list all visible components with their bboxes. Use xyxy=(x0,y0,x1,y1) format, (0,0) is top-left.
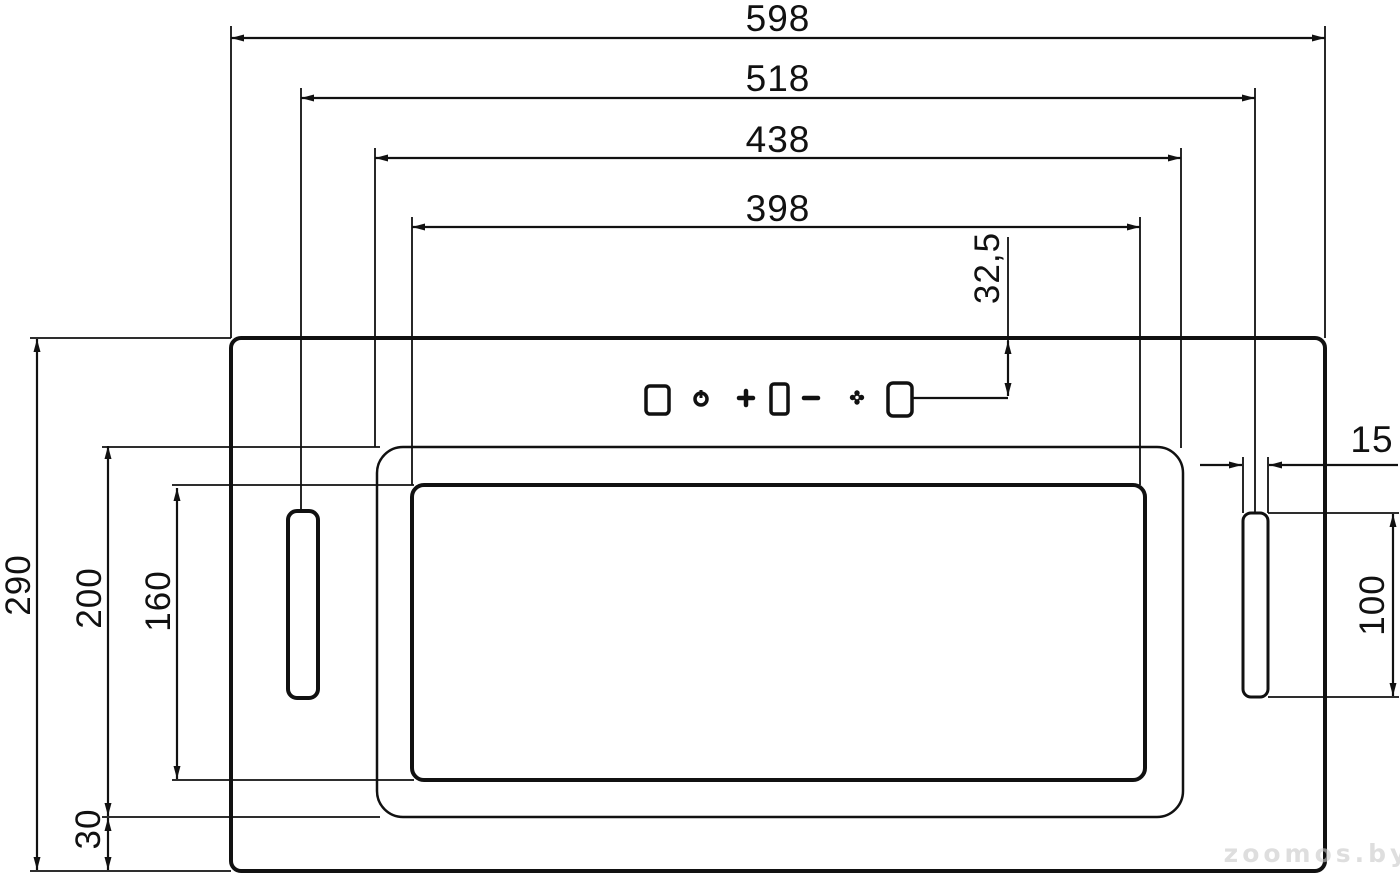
technical-drawing: 598 518 438 398 32,5 15 100 290 200 160 … xyxy=(0,0,1400,882)
drawing-canvas: 598 518 438 398 32,5 15 100 290 200 160 … xyxy=(0,0,1400,882)
dim-label-control-offset: 32,5 xyxy=(968,232,1007,304)
dim-label-overall-width: 598 xyxy=(746,0,811,39)
dim-label-overall-depth: 290 xyxy=(0,554,38,615)
dim-label-recess-width: 438 xyxy=(746,119,811,160)
power-icon xyxy=(695,390,707,405)
hood-body-outline xyxy=(231,338,1325,871)
dim-label-panel-depth: 160 xyxy=(139,570,178,631)
dimension-lines xyxy=(37,38,1398,870)
dim-label-panel-width: 398 xyxy=(746,188,811,229)
extension-lines xyxy=(30,26,1399,871)
dim-label-recess-depth: 200 xyxy=(70,567,109,628)
dim-label-slot-width: 15 xyxy=(1350,419,1393,460)
display-window-icon xyxy=(771,384,788,414)
dim-label-slot-height: 100 xyxy=(1353,574,1392,635)
recess-outline xyxy=(377,447,1183,817)
filter-panel-outline xyxy=(412,485,1145,780)
control-square-button-right-icon xyxy=(888,383,912,416)
dim-label-rear-offset: 30 xyxy=(69,809,108,850)
left-slot xyxy=(288,511,318,698)
control-panel xyxy=(646,383,912,416)
control-square-button-left-icon xyxy=(646,386,669,414)
watermark-text: zoomos.by xyxy=(1224,839,1400,868)
right-slot xyxy=(1243,513,1268,697)
plus-icon xyxy=(739,391,753,405)
dim-label-slot-span: 518 xyxy=(746,58,811,99)
light-icon xyxy=(850,390,864,404)
